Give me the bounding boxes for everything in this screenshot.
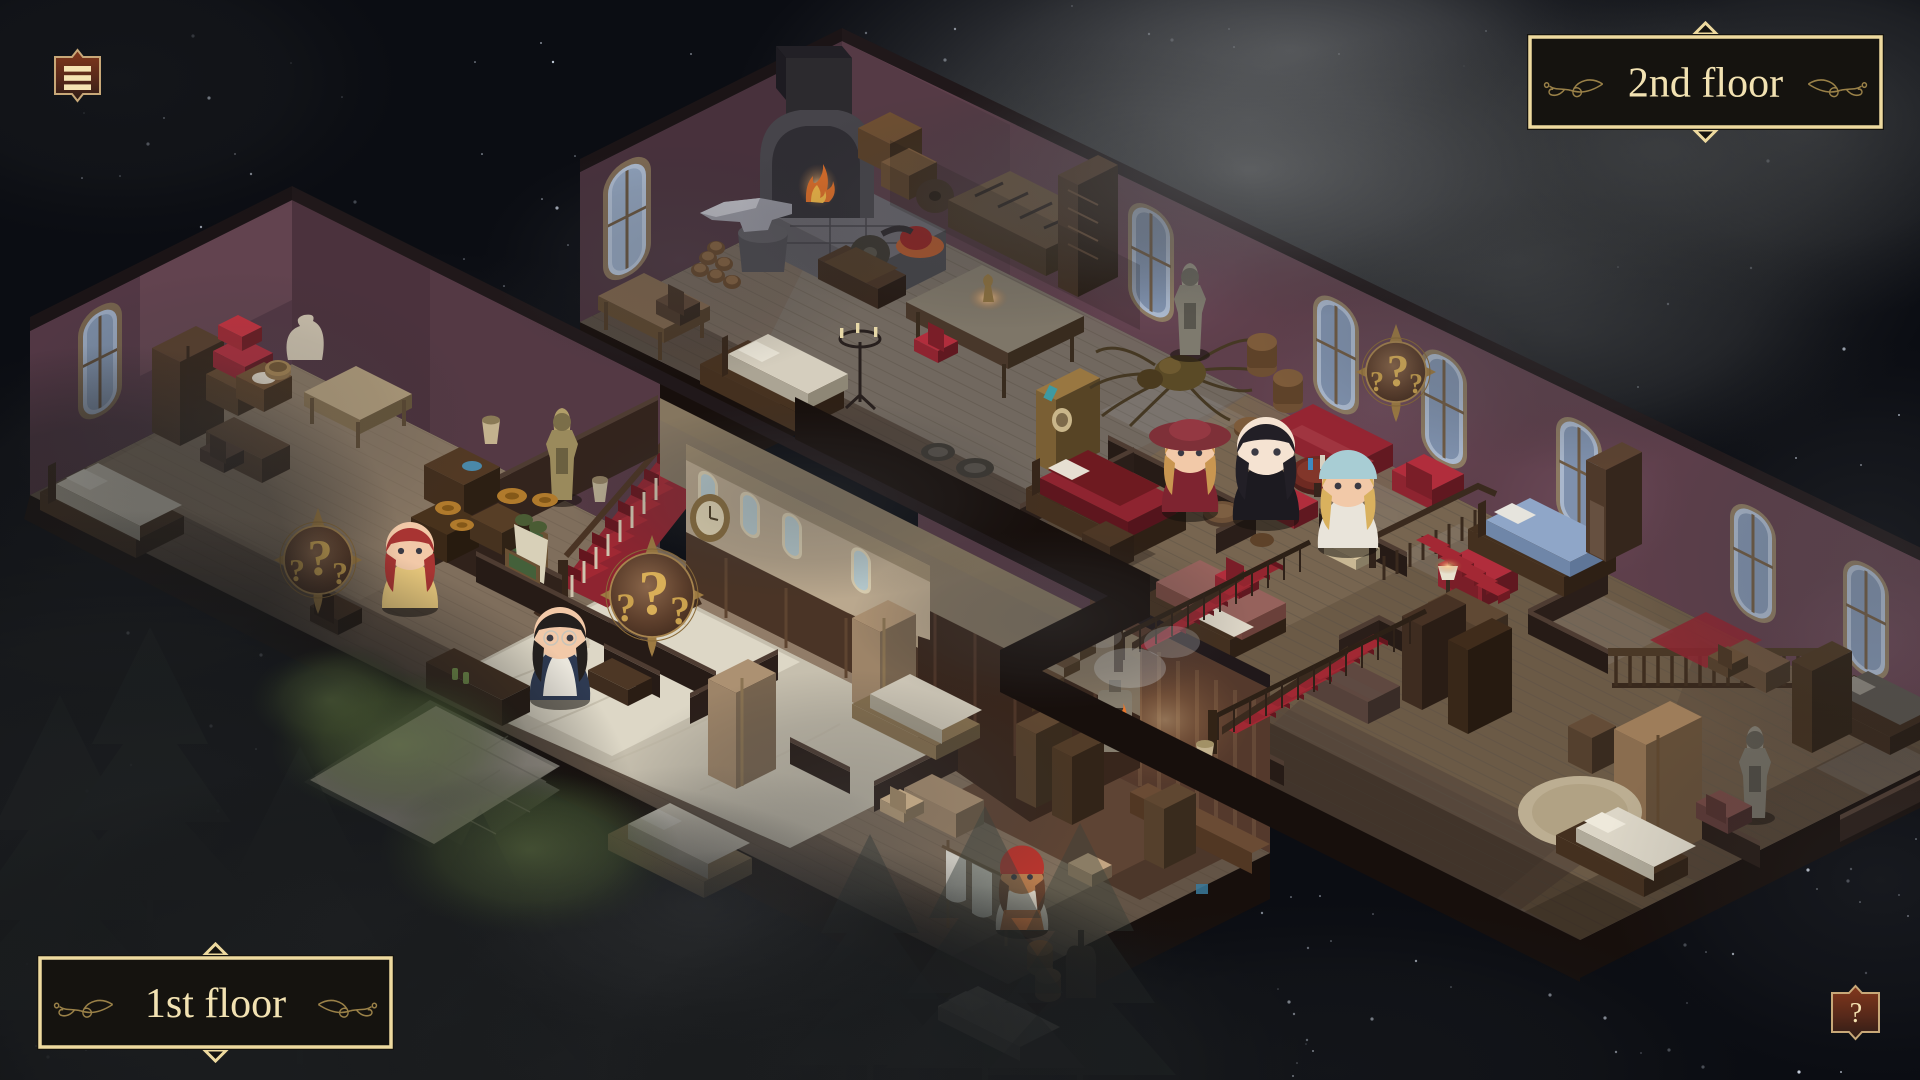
svg-text:1st floor: 1st floor [145, 981, 286, 1027]
svg-text:2nd floor: 2nd floor [1628, 60, 1783, 106]
svg-text:?: ? [1850, 998, 1862, 1029]
svg-text:?: ? [670, 588, 690, 633]
svg-text:?: ? [616, 585, 636, 630]
